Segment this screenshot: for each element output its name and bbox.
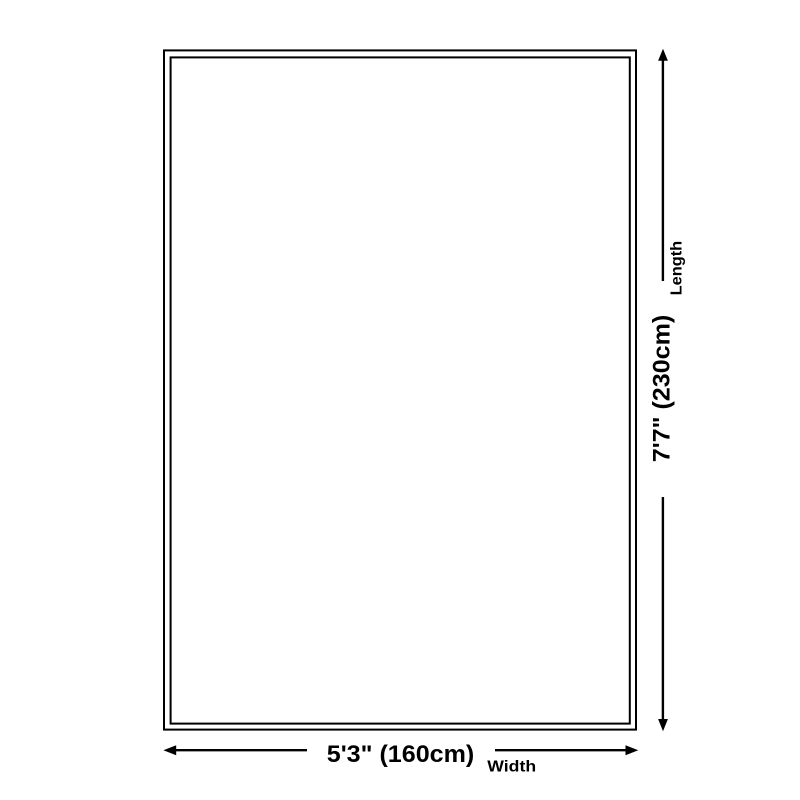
svg-text:7'7" (230cm): 7'7" (230cm) bbox=[649, 315, 676, 463]
svg-text:Width: Width bbox=[487, 759, 536, 776]
svg-text:5'3" (160cm): 5'3" (160cm) bbox=[327, 741, 475, 768]
svg-text:Length: Length bbox=[669, 241, 686, 296]
